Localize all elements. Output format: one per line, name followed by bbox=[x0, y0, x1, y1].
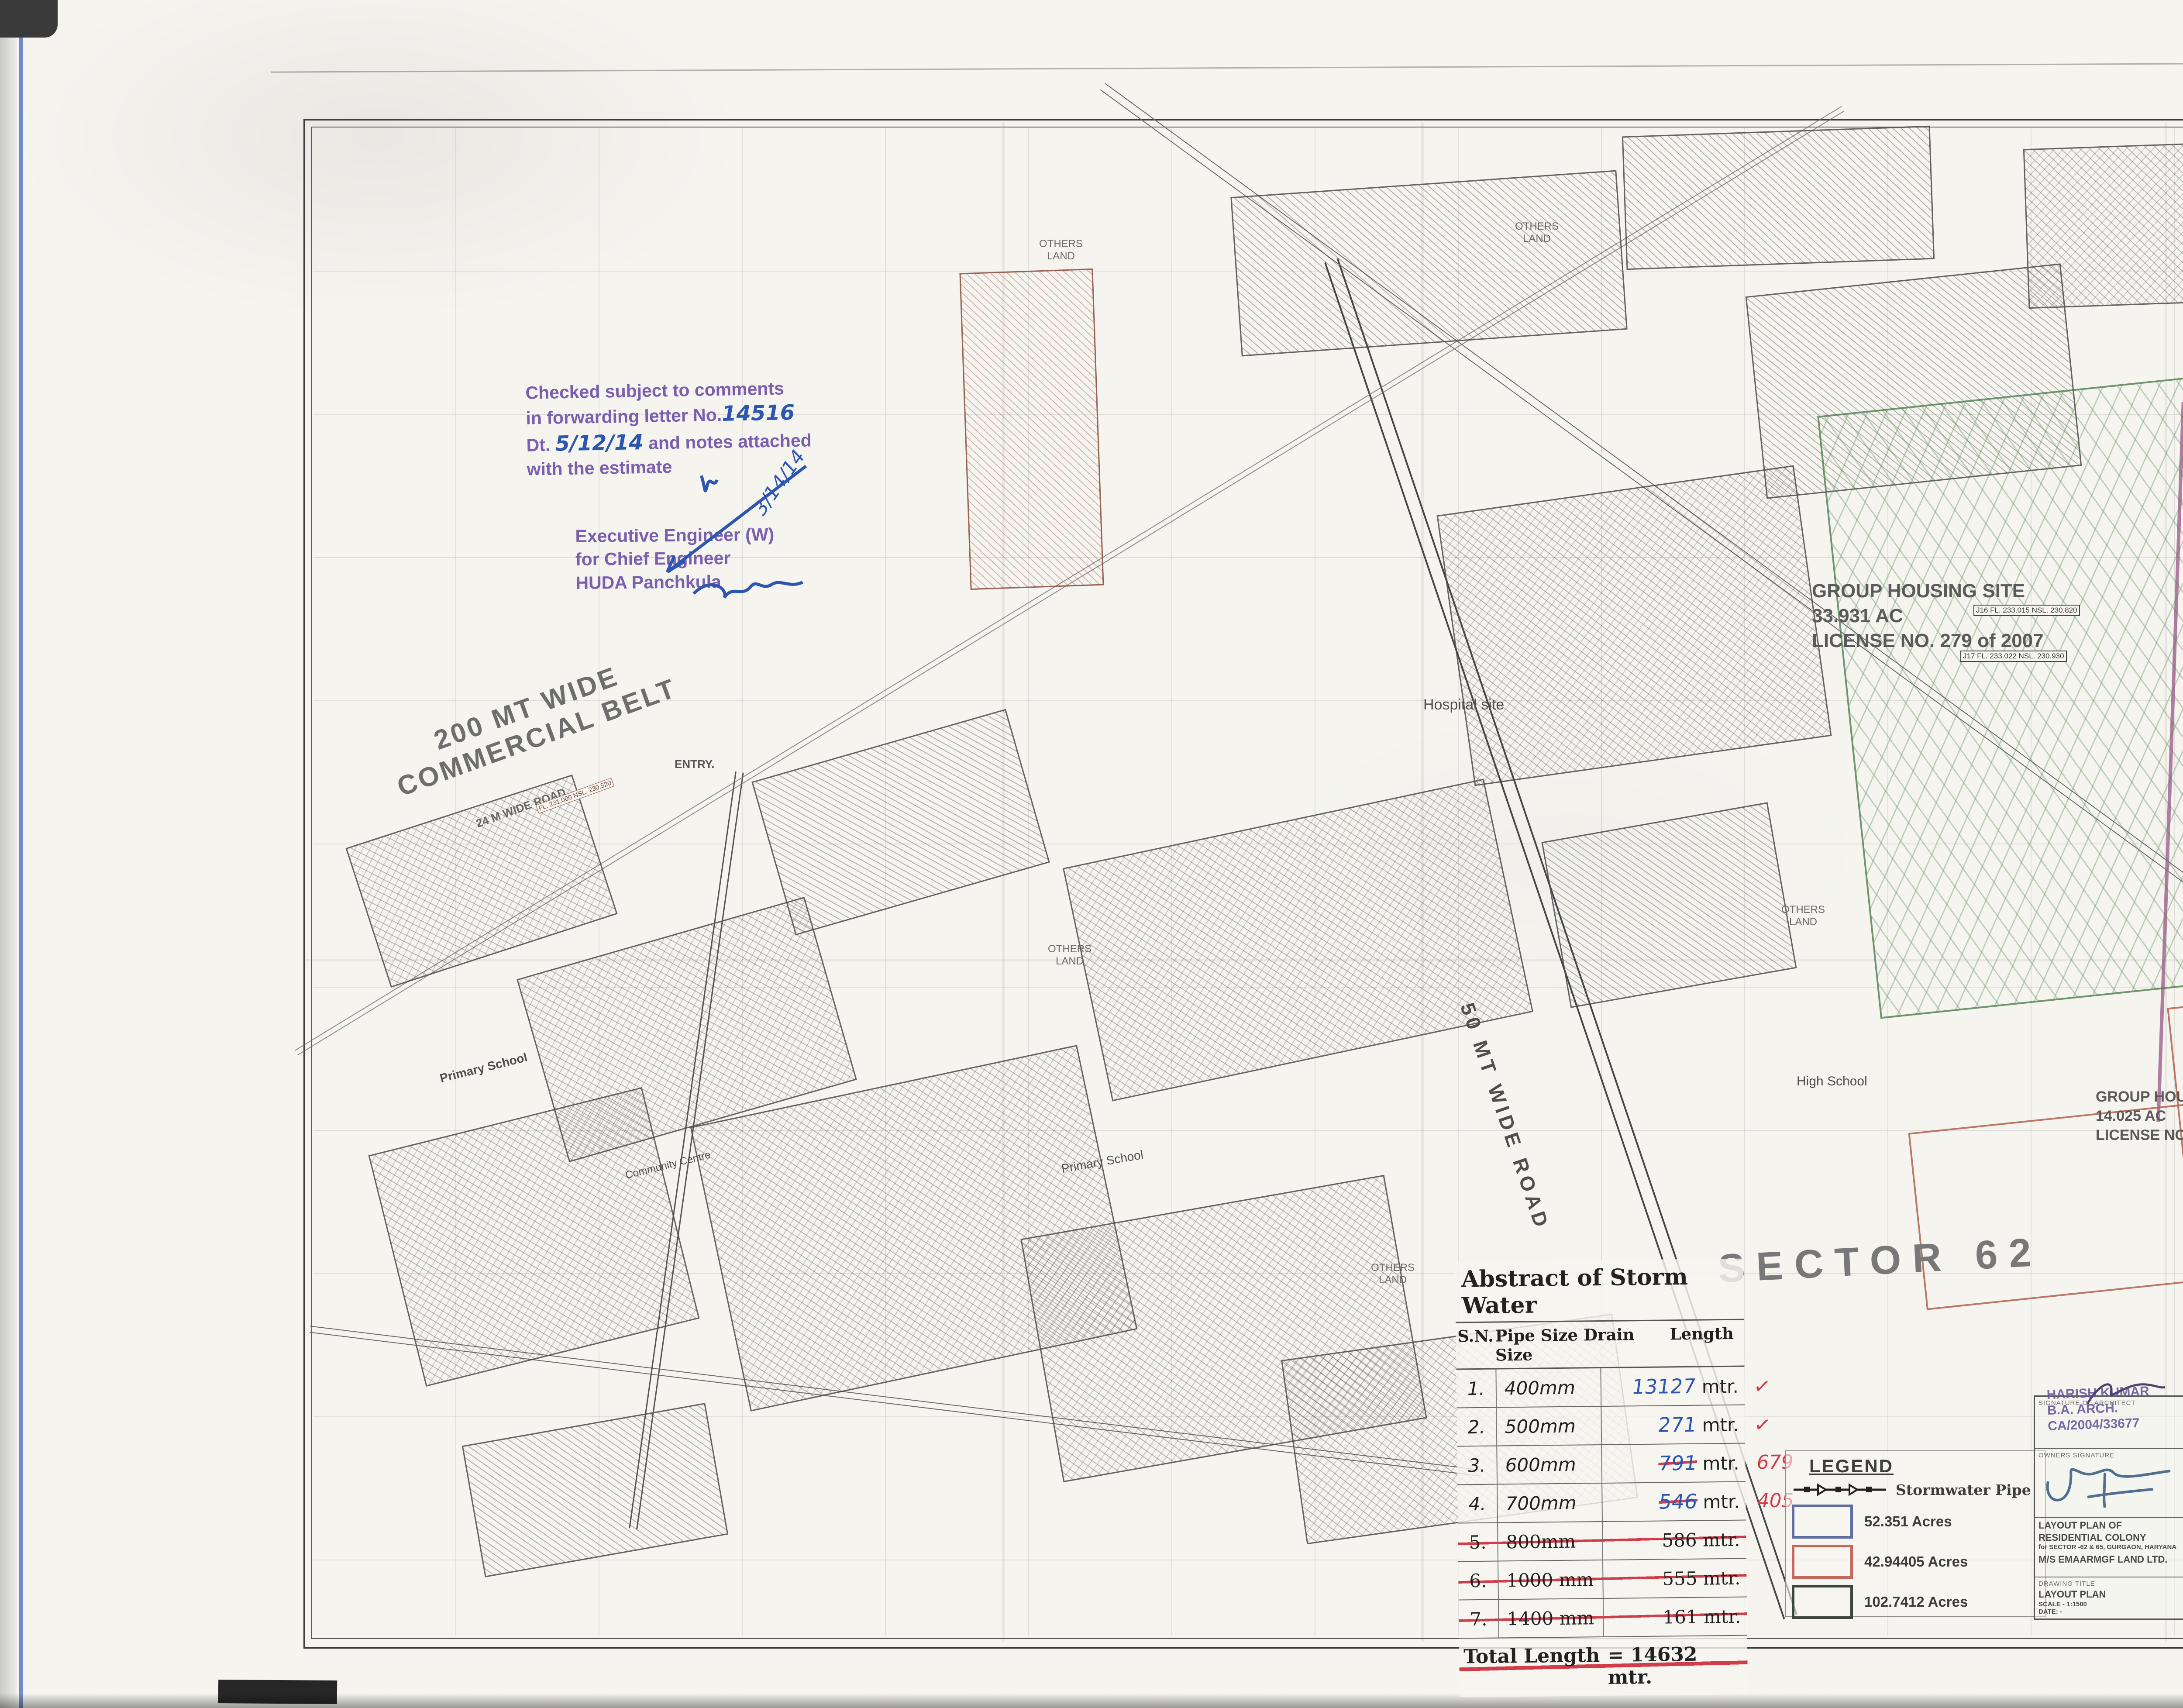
scan-corner-blotch bbox=[0, 0, 58, 38]
abstract-row: 5. 800mm 586 mtr. bbox=[1458, 1521, 1746, 1562]
legend-item: 42.94405 Acres bbox=[1792, 1545, 2039, 1579]
legend-swatch bbox=[1792, 1585, 1853, 1619]
plot-cluster bbox=[1230, 170, 1627, 357]
plot-cluster-brick bbox=[959, 269, 1104, 590]
abstract-row: 6. 1000 mm 555 mtr. bbox=[1458, 1559, 1747, 1601]
scan-edge-blue-strip bbox=[19, 0, 23, 1708]
legend-item: 52.351 Acres bbox=[1792, 1505, 2039, 1539]
plot-cluster bbox=[1436, 465, 1832, 786]
red-checkmark: ✓ bbox=[1753, 1374, 1772, 1399]
title-block: SIGNATURE OF ARCHITECT HARISH KUMAR B.A.… bbox=[2034, 1395, 2183, 1620]
legend: LEGEND Stormwater Pipe 52.351 Acres bbox=[1785, 1450, 2046, 1617]
abstract-total: Total Length = 14632 mtr. bbox=[1459, 1636, 1748, 1698]
architect-signature bbox=[2074, 1377, 2170, 1408]
label-others-land: OTHERS LAND bbox=[1367, 1262, 1419, 1286]
legend-pipe: Stormwater Pipe bbox=[1792, 1481, 2039, 1498]
label-others-land: OTHERS LAND bbox=[1035, 238, 1087, 262]
abstract-title: Abstract of Storm Water bbox=[1455, 1259, 1744, 1323]
storm-water-abstract: Abstract of Storm Water S.N. Pipe Size D… bbox=[1455, 1259, 1748, 1698]
manhole-tag-j17: J17 FL. 233.022 NSL. 230.930 bbox=[1960, 651, 2067, 662]
plot-cluster bbox=[2023, 139, 2183, 309]
abstract-row: 2. 500mm 271 mtr. ✓ bbox=[1456, 1405, 1745, 1447]
stormwater-pipe-icon bbox=[1792, 1481, 1888, 1498]
abstract-header: S.N. Pipe Size Drain Size Length bbox=[1456, 1320, 1744, 1370]
label-group-housing-2: GROUP HOUSING SITE14.025 ACLICENSE NO. 2… bbox=[2096, 1087, 2183, 1145]
manhole-tag-j16: J16 FL. 233.015 NSL. 230.820 bbox=[1973, 605, 2080, 616]
eew-signature bbox=[614, 457, 842, 608]
drawing-title-cell: DRAWING TITLE LAYOUT PLAN SCALE - 1:1500… bbox=[2035, 1577, 2183, 1624]
legend-title: LEGEND bbox=[1809, 1456, 2039, 1477]
label-others-land: OTHERS LAND bbox=[1777, 904, 1829, 928]
scan-bottom-shadow bbox=[0, 1693, 2183, 1708]
scanned-stormwater-layout-sheet: 200 MT WIDE COMMERCIAL BELT 50 MT WIDE R… bbox=[0, 0, 2183, 1708]
label-others-land: OTHERS LAND bbox=[1511, 220, 1563, 245]
label-entry: ENTRY. bbox=[675, 758, 715, 771]
label-others-land: OTHERS LAND bbox=[1043, 943, 1096, 968]
legend-item: 102.7412 Acres bbox=[1792, 1585, 2039, 1619]
group-housing-zone bbox=[1817, 338, 2183, 1019]
plot-cluster bbox=[1622, 126, 1935, 270]
architect-signature-cell: SIGNATURE OF ARCHITECT HARISH KUMAR B.A.… bbox=[2035, 1397, 2183, 1449]
sheet-edge-line bbox=[271, 59, 2183, 72]
executive-engineer-w-stamp: Executive Engineer (W) for Chief Enginee… bbox=[575, 523, 775, 595]
legend-swatch bbox=[1792, 1505, 1853, 1539]
label-high-school: High School bbox=[1797, 1074, 1867, 1089]
owner-signature bbox=[2039, 1455, 2183, 1512]
abstract-row: 7. 1400 mm 161 mtr. bbox=[1459, 1598, 1747, 1639]
abstract-row: 3. 600mm 791 mtr. 679 bbox=[1457, 1444, 1746, 1485]
scan-edge bbox=[0, 0, 17, 1708]
red-checkmark: ✓ bbox=[1753, 1412, 1773, 1438]
abstract-row: 1. 400mm 13127 mtr. ✓ bbox=[1456, 1367, 1745, 1408]
legend-swatch bbox=[1792, 1545, 1853, 1579]
owner-signature-cell: OWNERS SIGNATURE bbox=[2035, 1449, 2183, 1518]
project-cell: LAYOUT PLAN OF RESIDENTIAL COLONY for SE… bbox=[2035, 1518, 2183, 1577]
label-hospital: Hospital site bbox=[1423, 696, 1504, 713]
abstract-row: 4. 700mm 546 mtr. 405 bbox=[1457, 1482, 1746, 1524]
